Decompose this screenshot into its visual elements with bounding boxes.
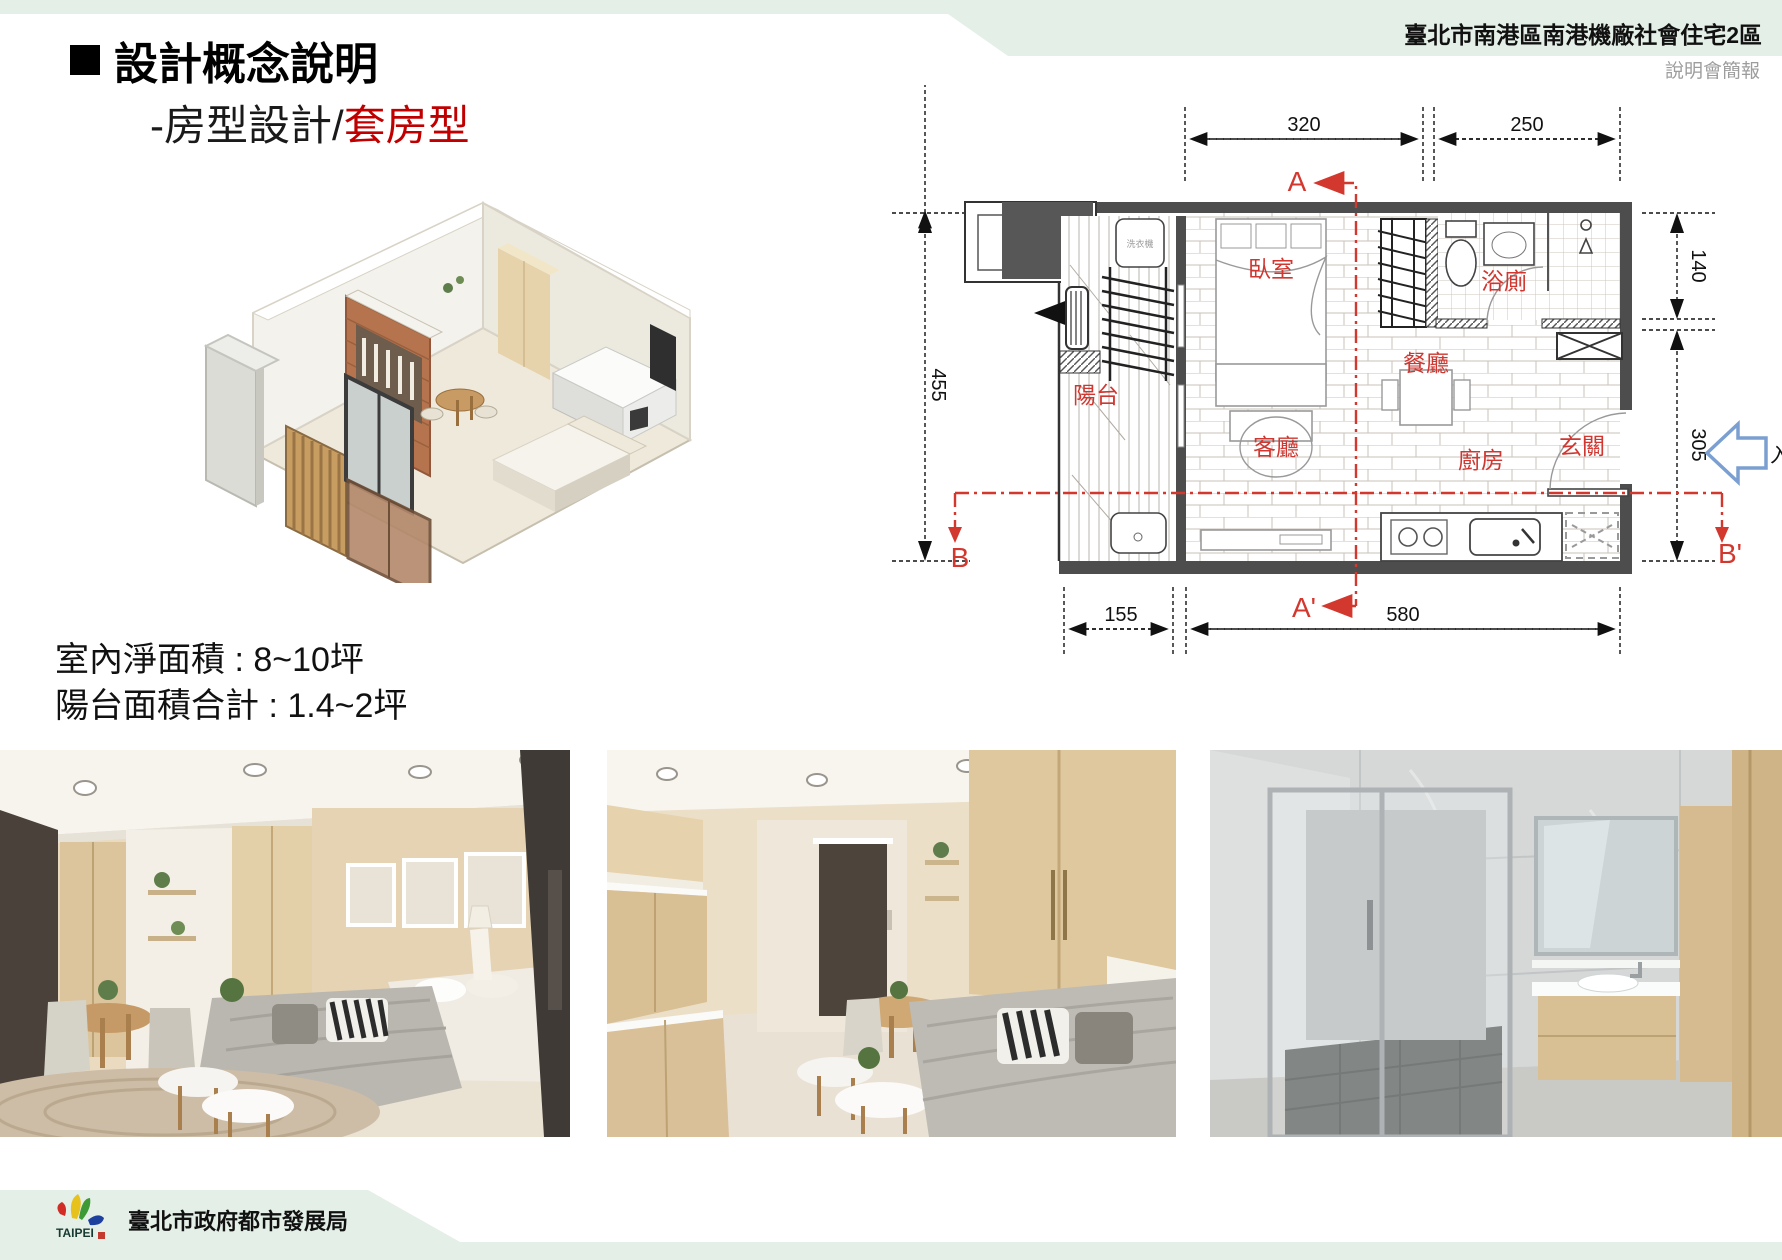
section-a-prime: A'	[1292, 592, 1316, 623]
dim-580: 580	[1386, 604, 1419, 626]
entrance-label: 入口	[1770, 445, 1782, 467]
washer-label: 洗衣機	[1126, 238, 1153, 249]
label-entry: 玄關	[1559, 433, 1605, 459]
label-living: 客廳	[1253, 434, 1299, 460]
dim-155: 155	[1104, 604, 1137, 626]
top-banner-strip	[0, 0, 1782, 14]
taipei-logo-text: TAIPEI	[56, 1226, 94, 1240]
label-kitchen: 廚房	[1458, 447, 1504, 473]
footer-strip	[0, 1242, 1782, 1260]
banner-subtitle: 說明會簡報	[1400, 60, 1760, 84]
wall-right-upper	[1620, 213, 1632, 410]
footer-agency: 臺北市政府都市發展局	[128, 1204, 348, 1236]
dim-250: 250	[1510, 114, 1543, 136]
dim-305: 305	[1687, 428, 1709, 461]
wardrobe	[1378, 219, 1438, 327]
label-balcony: 陽台	[1073, 382, 1119, 408]
axonometric-render	[198, 128, 718, 583]
floor-plan: 320 250 455	[780, 85, 1782, 655]
label-dining: 餐廳	[1403, 350, 1449, 376]
taipei-logo: TAIPEI	[46, 1192, 112, 1244]
bed	[1216, 219, 1326, 381]
slide: 臺北市南港區南港機廠社會住宅2區 說明會簡報 設計概念說明 -房型設計/套房型	[0, 0, 1782, 1260]
banner-project-title: 臺北市南港區南港機廠社會住宅2區	[982, 18, 1762, 52]
section-a: A	[1288, 166, 1307, 197]
area-info-line2: 陽台面積合計 : 1.4~2坪	[55, 678, 407, 727]
label-bathroom: 浴廁	[1481, 268, 1527, 294]
bathroom	[1436, 213, 1620, 328]
dim-455: 455	[927, 368, 949, 401]
title-bullet-square	[70, 45, 100, 75]
page-title: 設計概念說明	[70, 34, 378, 86]
section-b-prime: B'	[1718, 538, 1742, 569]
label-bedroom: 臥室	[1248, 256, 1294, 282]
photo-living-room-2	[607, 750, 1176, 1137]
dim-320: 320	[1287, 114, 1320, 136]
photo-living-room-1	[0, 750, 570, 1137]
photo-bathroom	[1210, 750, 1782, 1137]
section-b: B	[951, 542, 970, 573]
area-info-line1: 室內淨面積 : 8~10坪	[55, 632, 364, 681]
title-main-text: 設計概念說明	[114, 28, 378, 92]
entrance-arrow-icon	[1707, 424, 1766, 482]
dim-140: 140	[1687, 249, 1709, 282]
wall-bottom	[1059, 561, 1632, 574]
